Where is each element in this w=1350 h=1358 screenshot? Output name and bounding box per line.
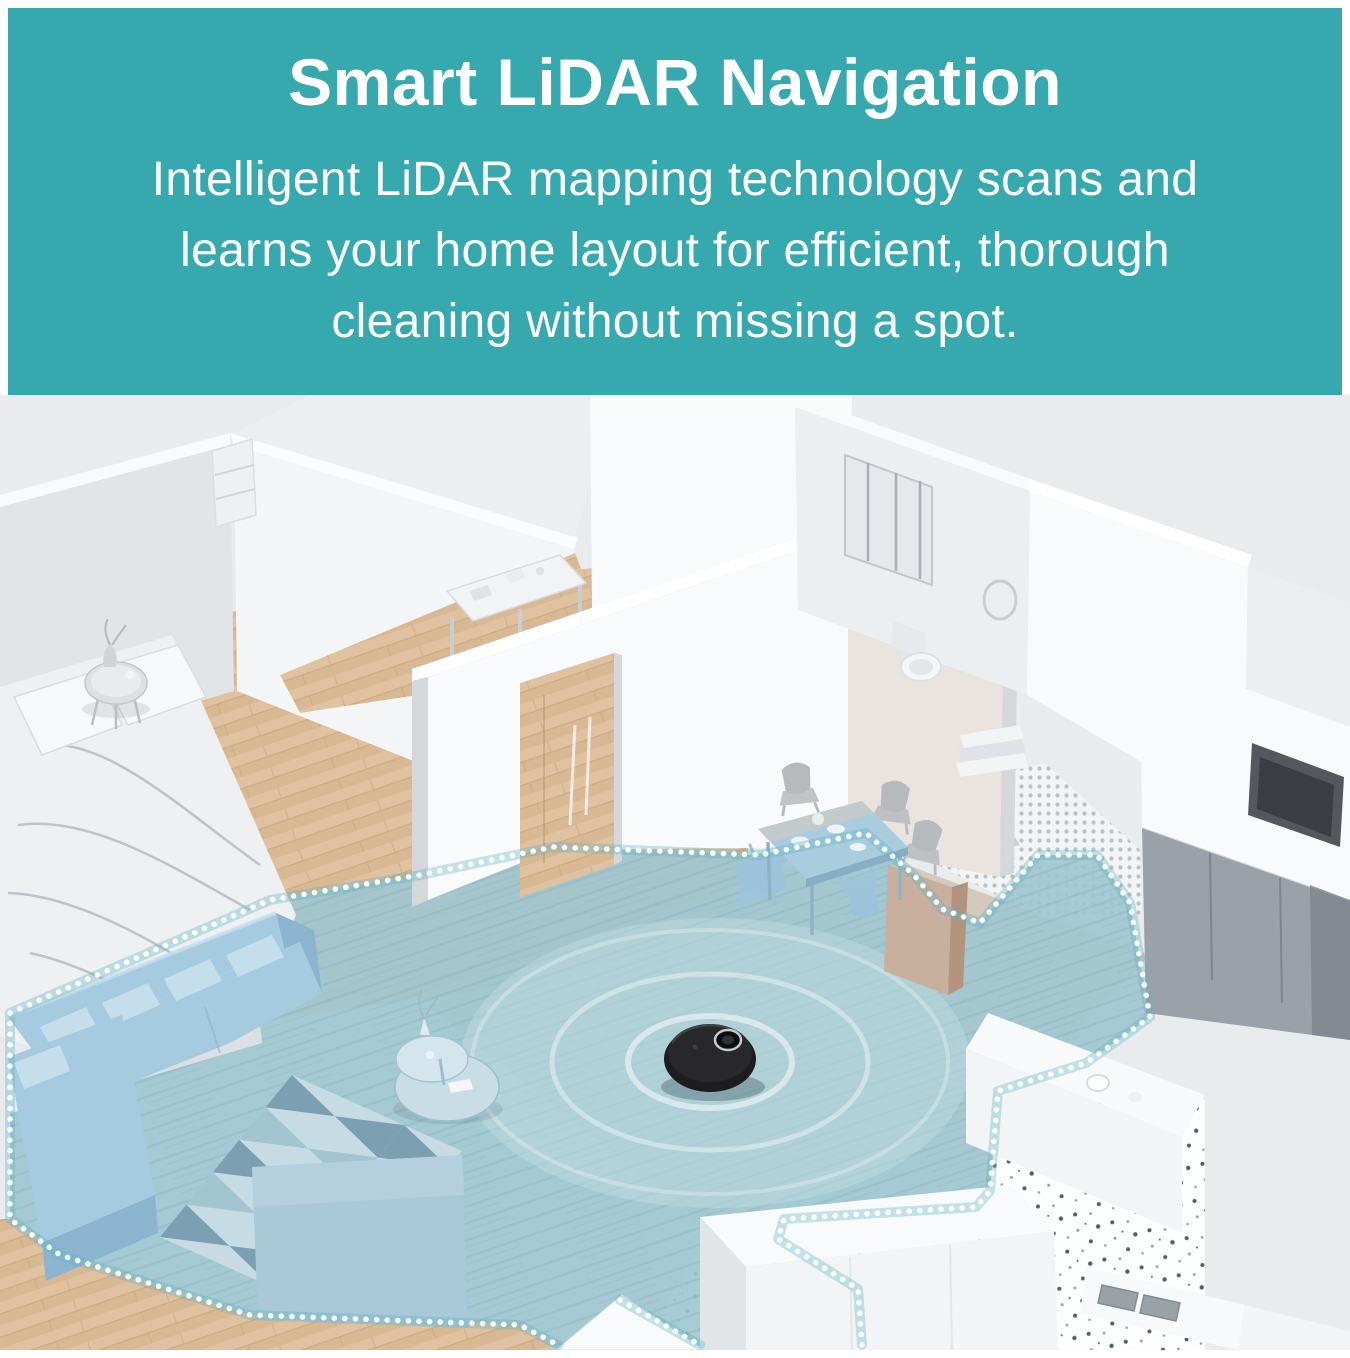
subtitle-line-1: Intelligent LiDAR mapping technology sca… [8,144,1342,215]
page-subtitle: Intelligent LiDAR mapping technology sca… [8,144,1342,357]
kettle [1087,1075,1109,1091]
plate [850,843,866,851]
robot-sensor [693,1045,698,1050]
marketing-image: Smart LiDAR Navigation Intelligent LiDAR… [0,8,1350,1358]
jar [1128,1092,1142,1102]
media-console [252,1155,468,1327]
floorplan-scene [0,395,1350,1350]
teapot [812,813,824,825]
page-title: Smart LiDAR Navigation [8,44,1342,120]
floorplan-illustration [0,395,1350,1350]
doorway [520,653,622,897]
bathroom-mirror [984,581,1016,619]
subtitle-line-3: cleaning without missing a spot. [8,286,1342,357]
plate [827,825,845,834]
header-banner: Smart LiDAR Navigation Intelligent LiDAR… [8,8,1342,395]
subtitle-line-2: learns your home layout for efficient, t… [8,215,1342,286]
top-shelf-unit [212,439,256,527]
